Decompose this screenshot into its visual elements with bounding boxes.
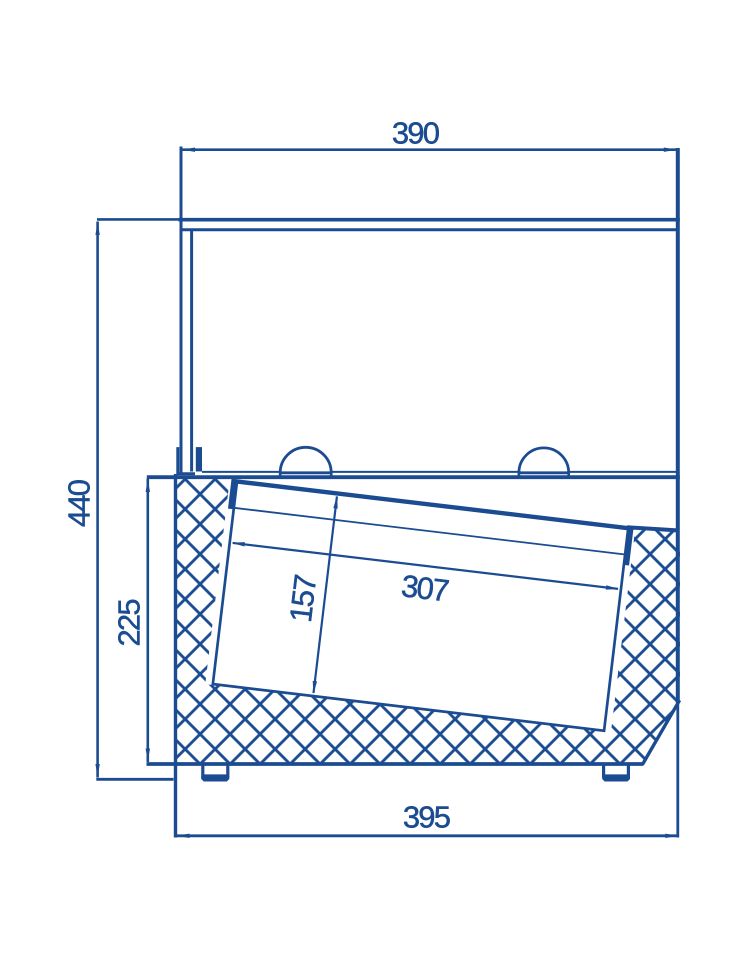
svg-text:225: 225 [112,600,147,647]
svg-text:390: 390 [392,115,440,150]
svg-text:307: 307 [399,568,450,608]
svg-text:395: 395 [403,799,450,834]
svg-text:157: 157 [283,574,323,625]
svg-text:440: 440 [61,479,96,527]
